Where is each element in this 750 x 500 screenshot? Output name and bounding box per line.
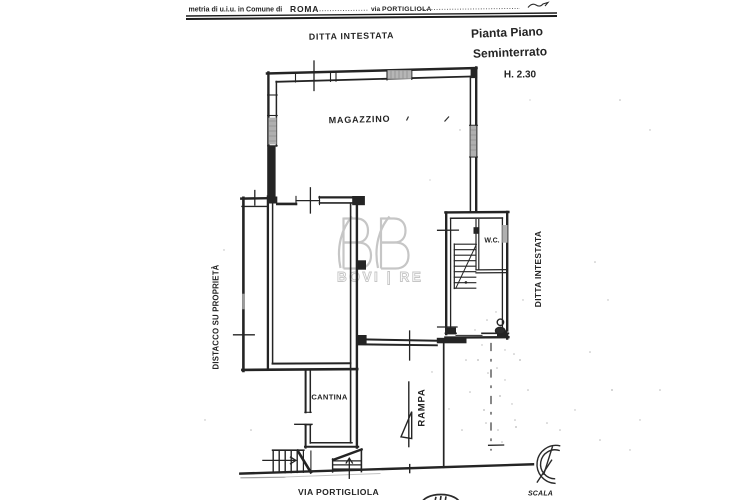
svg-text:Pianta Piano: Pianta Piano — [471, 24, 543, 41]
svg-text:via: via — [371, 6, 380, 13]
svg-text:RAMPA: RAMPA — [417, 388, 428, 426]
svg-text:SCALA: SCALA — [528, 491, 553, 498]
svg-text:DITTA INTESTATA: DITTA INTESTATA — [309, 30, 394, 41]
svg-text:ROMA: ROMA — [290, 4, 319, 14]
svg-text:MAGAZZINO: MAGAZZINO — [329, 114, 391, 126]
svg-text:Seminterrato: Seminterrato — [473, 44, 547, 61]
svg-text:CANTINA: CANTINA — [311, 393, 347, 402]
svg-text:W.C.: W.C. — [484, 238, 499, 245]
svg-text:DISTACCO SU PROPRIETÀ: DISTACCO SU PROPRIETÀ — [212, 264, 221, 369]
svg-text:VIA PORTIGLIOLA: VIA PORTIGLIOLA — [298, 487, 379, 497]
svg-text:metria di u.i.u. in Comune di: metria di u.i.u. in Comune di — [189, 7, 283, 14]
svg-text:DITTA INTESTATA: DITTA INTESTATA — [533, 231, 543, 307]
svg-text:H. 2.30: H. 2.30 — [504, 70, 537, 81]
